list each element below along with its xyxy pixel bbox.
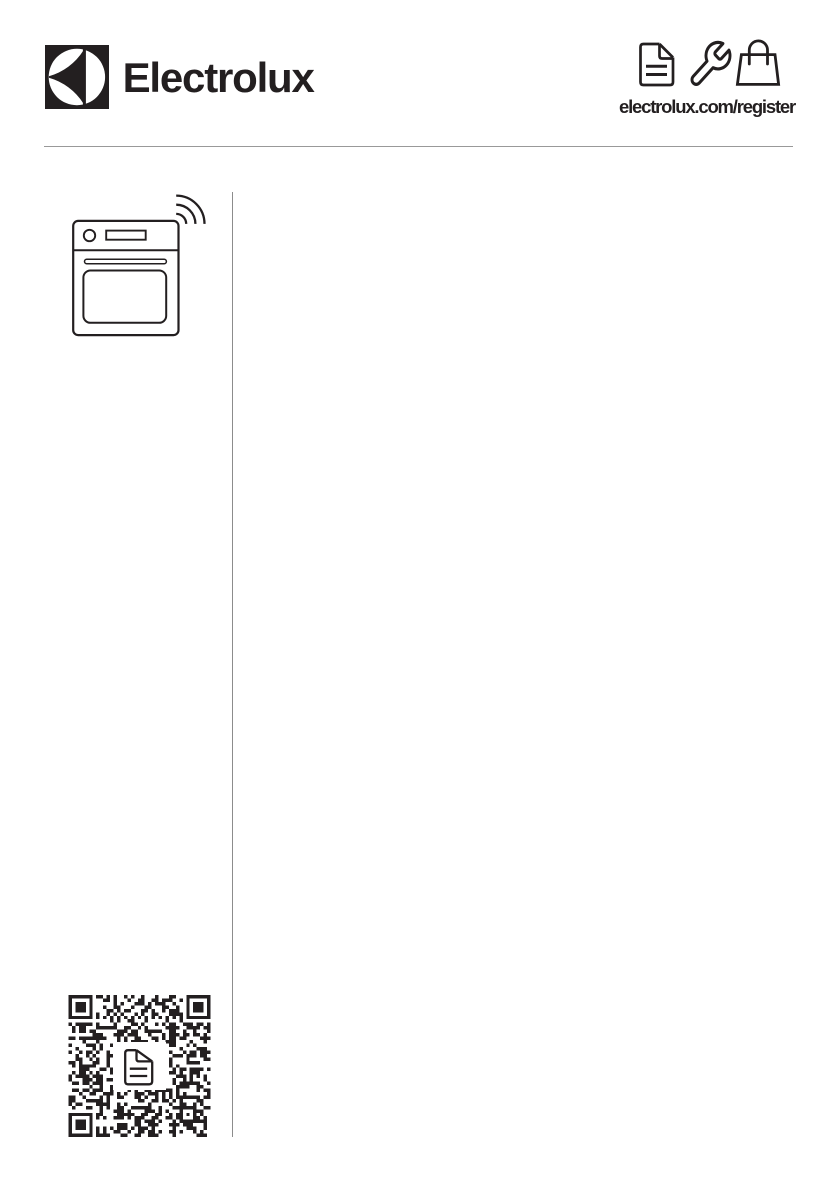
- svg-text:Electrolux: Electrolux: [123, 54, 316, 101]
- svg-text:electrolux.com/register: electrolux.com/register: [619, 96, 796, 117]
